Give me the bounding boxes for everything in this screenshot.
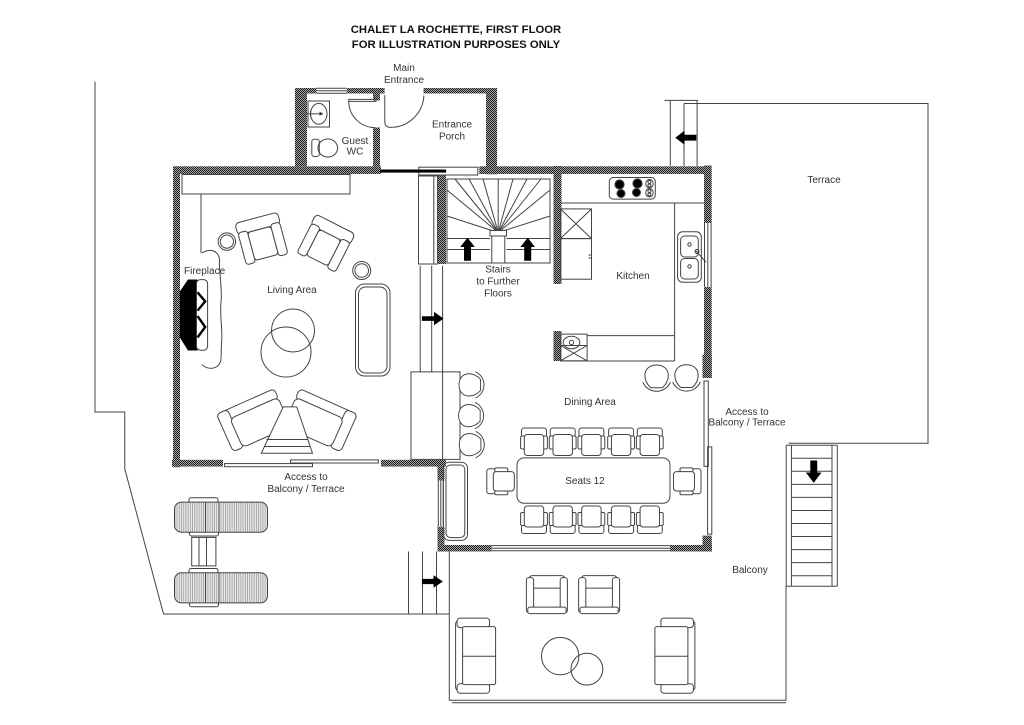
svg-text:Dining Area: Dining Area — [564, 397, 616, 408]
svg-text:Main: Main — [393, 63, 415, 74]
svg-text:Entrance: Entrance — [384, 75, 424, 86]
svg-text:Porch: Porch — [439, 132, 465, 143]
svg-text:Access to: Access to — [725, 407, 769, 418]
svg-text:WC: WC — [347, 147, 364, 158]
svg-text:Terrace: Terrace — [807, 175, 841, 186]
svg-text:Kitchen: Kitchen — [616, 271, 649, 282]
svg-text:Floors: Floors — [484, 289, 512, 300]
svg-text:Living Area: Living Area — [267, 285, 317, 296]
svg-text:CHALET LA ROCHETTE, FIRST FLOO: CHALET LA ROCHETTE, FIRST FLOOR — [351, 24, 561, 36]
svg-text:Access to: Access to — [284, 472, 328, 483]
svg-text:FOR ILLUSTRATION PURPOSES ONLY: FOR ILLUSTRATION PURPOSES ONLY — [352, 39, 561, 51]
svg-text:Balcony / Terrace: Balcony / Terrace — [267, 484, 345, 495]
svg-text:to Further: to Further — [476, 277, 520, 288]
svg-text:Balcony: Balcony — [732, 565, 768, 576]
svg-text:Seats 12: Seats 12 — [565, 476, 605, 487]
svg-text:Guest: Guest — [342, 136, 369, 147]
svg-text:Balcony / Terrace: Balcony / Terrace — [708, 418, 786, 429]
svg-text:Fireplace: Fireplace — [184, 266, 226, 277]
svg-text:Entrance: Entrance — [432, 120, 472, 131]
svg-text:Stairs: Stairs — [485, 265, 511, 276]
